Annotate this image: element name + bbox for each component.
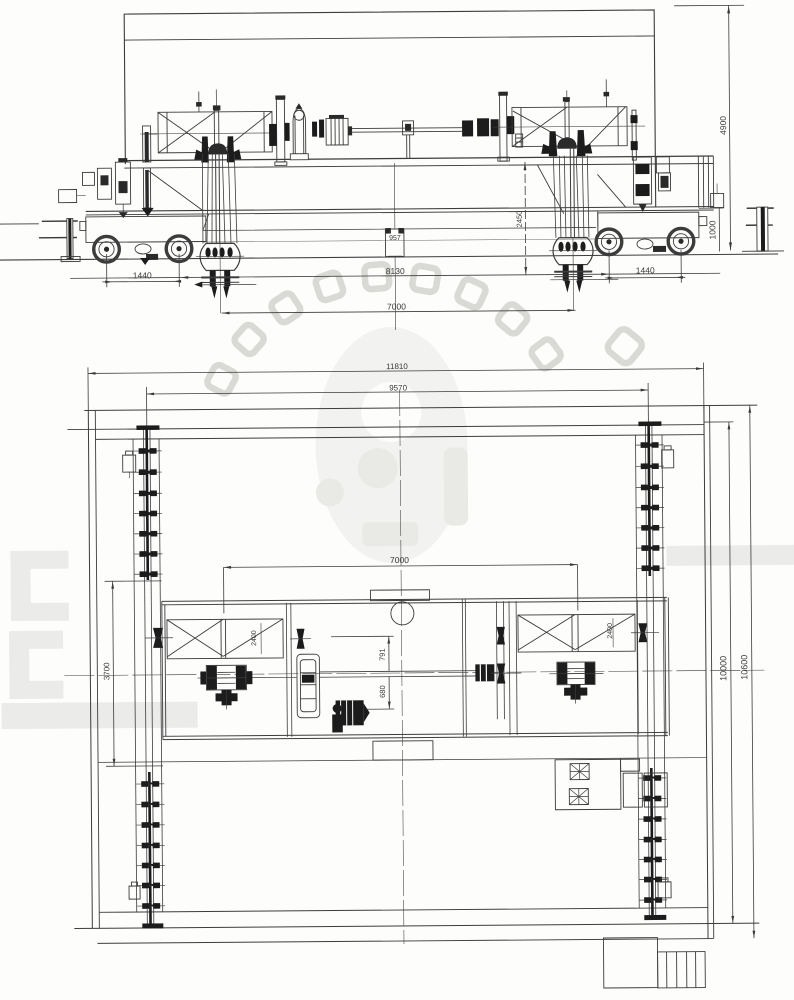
svg-text:2400: 2400 xyxy=(251,630,258,646)
svg-text:7000: 7000 xyxy=(387,301,406,311)
svg-text:8130: 8130 xyxy=(386,266,405,276)
svg-text:1000: 1000 xyxy=(707,220,717,239)
svg-text:3700: 3700 xyxy=(102,662,111,680)
svg-text:791: 791 xyxy=(378,648,387,661)
svg-text:2400: 2400 xyxy=(607,623,614,639)
svg-text:9570: 9570 xyxy=(389,383,407,392)
svg-text:10600: 10600 xyxy=(739,655,749,680)
svg-text:7000: 7000 xyxy=(390,555,409,565)
svg-text:1440: 1440 xyxy=(133,270,152,280)
svg-text:10000: 10000 xyxy=(718,656,728,681)
svg-text:4900: 4900 xyxy=(718,116,728,135)
svg-text:680: 680 xyxy=(378,685,387,698)
svg-text:957: 957 xyxy=(389,235,401,242)
svg-text:2450: 2450 xyxy=(515,211,524,228)
svg-text:11810: 11810 xyxy=(386,362,408,371)
